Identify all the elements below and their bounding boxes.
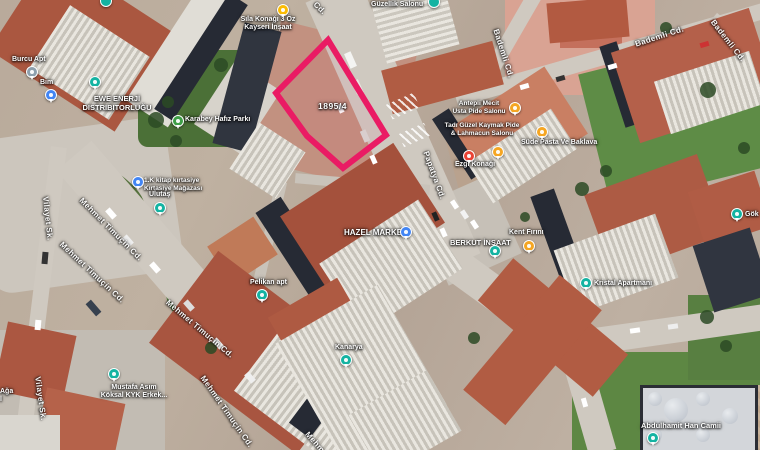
label-line: Köksal KYK Erkek... — [101, 392, 168, 399]
berkut-insaat-pin[interactable] — [489, 245, 501, 257]
bim-label[interactable]: Bim — [40, 79, 53, 87]
label-line: Kayseri İnşaat — [244, 24, 291, 31]
label-line: & Lahmacun Salonu — [451, 130, 513, 137]
label-line: Mustafa Asım — [111, 384, 156, 391]
tadi-guzel-label[interactable]: Tadı Güzel Kaymak Pide & Lahmacun Salonu — [444, 122, 520, 138]
antepli-pide-label[interactable]: Antepli Mecit Usta Pide Salonu — [450, 100, 508, 116]
aga-label-fragment[interactable]: Ağa l — [0, 388, 13, 405]
abdulhamit-camii-pin[interactable] — [647, 432, 659, 444]
parcel-number: 1895/4 — [318, 101, 347, 111]
hazel-market-pin[interactable] — [400, 226, 412, 238]
kristal-apartmani-label[interactable]: Kristal Apartmanı — [594, 280, 652, 288]
label-line: Usta Pide Salonu — [452, 108, 505, 115]
sude-pasta-pin[interactable] — [536, 126, 548, 138]
ewe-enerji-label[interactable]: EWE ENERJİ DISTRIBITORLUĞU — [78, 94, 156, 112]
tadi-guzel-pin[interactable] — [492, 146, 504, 158]
ulutas-label[interactable]: Ulutaş — [149, 191, 170, 199]
hazel-market-label[interactable]: HAZEL MARKET — [344, 228, 407, 238]
label-line: 1.K kitap kırtasiye — [144, 177, 199, 184]
sila-konagi-pin[interactable] — [277, 4, 289, 16]
ewe-enerji-pin[interactable] — [89, 76, 101, 88]
label-line: l — [0, 396, 2, 403]
bim-pin[interactable] — [45, 89, 57, 101]
ezgi-konagi-label[interactable]: Ezgi Konağı — [455, 161, 495, 169]
ulutas-pin[interactable] — [154, 202, 166, 214]
sude-pasta-label[interactable]: Süde Pasta Ve Baklava — [521, 139, 597, 147]
label-line: Antepli Mecit — [459, 100, 499, 107]
label-line: Tadı Güzel Kaymak Pide — [445, 122, 520, 129]
sila-konagi-label[interactable]: Sıla Konağı 3 Öz Kayseri İnşaat — [236, 16, 300, 33]
burcu-apt-pin[interactable] — [26, 66, 38, 78]
antepli-pide-pin[interactable] — [509, 102, 521, 114]
ezgi-konagi-pin[interactable] — [463, 150, 475, 162]
berkut-insaat-label[interactable]: BERKUT İNŞAAT — [450, 238, 511, 247]
pelikan-apt-pin[interactable] — [256, 289, 268, 301]
label-line: EWE ENERJİ — [94, 94, 140, 103]
karabey-park-pin[interactable] — [172, 115, 184, 127]
abdulhamit-camii-label[interactable]: Abdulhamit Han Camii — [641, 421, 721, 430]
label-line: Sıla Konağı 3 Öz — [241, 16, 296, 23]
guzellik-salonu-label[interactable]: Güzellik Salonu — [371, 1, 423, 9]
kristal-apartmani-pin[interactable] — [580, 277, 592, 289]
kirtasiye-pin[interactable] — [132, 176, 144, 188]
kent-firini-pin[interactable] — [523, 240, 535, 252]
gok-label[interactable]: Gök — [745, 211, 759, 219]
kent-firini-label[interactable]: Kent Fırını — [509, 229, 544, 237]
karabey-park-label[interactable]: Karabey Hafız Parkı — [185, 116, 250, 124]
satellite-map[interactable]: 1895/4 Bademli Cd. Bademli Cd. Bademli C… — [0, 0, 760, 450]
pelikan-apt-label[interactable]: Pelikan apt — [250, 279, 287, 287]
burcu-apt-label[interactable]: Burcu Apt — [12, 56, 46, 64]
gok-pin[interactable] — [731, 208, 743, 220]
label-line: DISTRIBITORLUĞU — [82, 103, 151, 112]
kyk-yurdu-label[interactable]: Mustafa Asım Köksal KYK Erkek... — [92, 384, 176, 401]
kyk-yurdu-pin[interactable] — [108, 368, 120, 380]
kanarya-pin[interactable] — [340, 354, 352, 366]
kanarya-label[interactable]: Kanarya — [335, 344, 363, 352]
label-line: Ağa — [0, 388, 13, 395]
